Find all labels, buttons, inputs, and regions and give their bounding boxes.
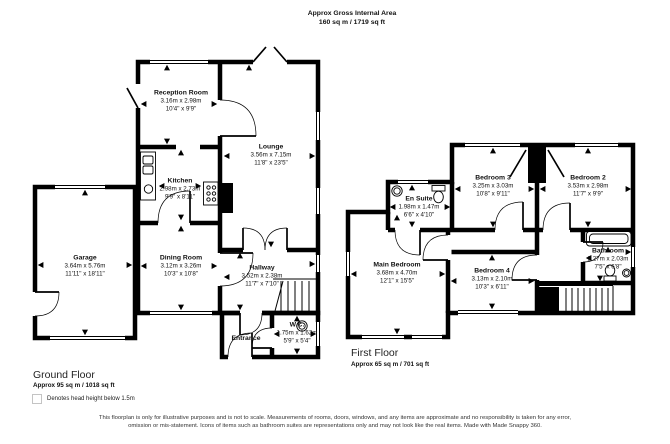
- gross-area-value: 160 sq m / 1719 sq ft: [319, 19, 385, 26]
- room-name: Dining Room: [160, 254, 202, 262]
- room-name: Bedroom 2: [568, 174, 609, 182]
- room-name: Main Bedroom: [373, 261, 420, 269]
- room-name: En Suite: [399, 195, 440, 203]
- window: [575, 142, 618, 149]
- window: [315, 255, 322, 272]
- legend-label: Denotes head height below 1.5m: [47, 396, 135, 402]
- room-dim-imperial: 12'1" x 15'5": [373, 277, 420, 284]
- room-name: Reception Room: [154, 89, 208, 97]
- room-dim-imperial: 10'3" x 6'11": [472, 283, 513, 290]
- room-dim-imperial: 10'8" x 9'11": [473, 190, 514, 197]
- room-label-bedroom4: Bedroom 4 3.13m x 2.10m 10'3" x 6'11": [472, 267, 513, 290]
- window: [630, 247, 637, 267]
- room-label-bathroom: Bathroom 2.27m x 2.03m 7'5" x 6'8": [588, 247, 629, 270]
- room-label-en-suite: En Suite 1.98m x 1.47m 6'6" x 4'10": [399, 195, 440, 218]
- first-floor-plan: [345, 142, 637, 341]
- room-dim-imperial: 11'11" x 18'11": [65, 270, 106, 277]
- chimney-breast: [220, 183, 233, 213]
- room-dim-metric: 3.25m x 3.03m: [473, 183, 514, 190]
- window: [362, 334, 404, 341]
- room-name: Garage: [65, 254, 106, 262]
- chimney-breast: [528, 145, 546, 183]
- room-label-main-bedroom: Main Bedroom 3.68m x 4.70m 12'1" x 15'5": [373, 261, 420, 284]
- window: [150, 59, 208, 66]
- ground-floor-title: Ground Floor: [33, 369, 95, 381]
- room-label-kitchen: Kitchen 2.98m x 2.73m 9'9" x 8'11": [160, 177, 201, 200]
- room-name: Entrance: [231, 335, 260, 343]
- first-floor-title: First Floor: [351, 347, 398, 359]
- page-header: Approx Gross Internal Area 160 sq m / 17…: [308, 10, 397, 28]
- head-height-swatch: [32, 394, 42, 404]
- window: [345, 252, 352, 276]
- floorplan-drawing: [0, 0, 670, 444]
- window: [50, 335, 125, 342]
- room-dim-metric: 1.98m x 1.47m: [399, 204, 440, 211]
- bathtub-icon: [587, 232, 632, 247]
- floorplan-page: Approx Gross Internal Area 160 sq m / 17…: [0, 0, 670, 444]
- room-dim-metric: 3.12m x 3.26m: [160, 263, 202, 270]
- room-dim-metric: 3.68m x 4.70m: [373, 270, 420, 277]
- legend: Denotes head height below 1.5m: [32, 394, 135, 404]
- room-label-reception: Reception Room 3.16m x 2.98m 10'4" x 9'9…: [154, 89, 208, 112]
- room-label-bedroom3: Bedroom 3 3.25m x 3.03m 10'8" x 9'11": [473, 174, 514, 197]
- room-dim-metric: 3.52m x 2.38m: [242, 273, 283, 280]
- room-dim-metric: 3.56m x 7.15m: [251, 152, 292, 159]
- room-dim-imperial: 11'7" x 7'10": [242, 280, 283, 287]
- window: [458, 309, 518, 316]
- room-name: Bedroom 3: [473, 174, 514, 182]
- sink-icon: [143, 156, 153, 164]
- room-name: W.C.: [277, 321, 318, 329]
- disclaimer-text: This floorplan is only for illustrative …: [95, 415, 575, 430]
- room-name: Kitchen: [160, 177, 201, 185]
- room-label-bedroom2: Bedroom 2 3.53m x 2.98m 11'7" x 9'9": [568, 174, 609, 197]
- window: [315, 188, 322, 214]
- room-dim-metric: 3.64m x 5.76m: [65, 263, 106, 270]
- room-dim-metric: 2.27m x 2.03m: [588, 256, 629, 263]
- room-label-entrance: Entrance: [231, 335, 260, 343]
- room-dim-imperial: 11'8" x 23'5": [251, 159, 292, 166]
- first-staircase: [537, 281, 613, 313]
- room-label-hallway: Hallway 3.52m x 2.38m 11'7" x 7'10": [242, 264, 283, 287]
- room-label-lounge: Lounge 3.56m x 7.15m 11'8" x 23'5": [251, 143, 292, 166]
- room-dim-imperial: 11'7" x 9'9": [568, 190, 609, 197]
- room-label-garage: Garage 3.64m x 5.76m 11'11" x 18'11": [65, 254, 106, 277]
- room-name: Hallway: [242, 264, 283, 272]
- room-dim-imperial: 7'5" x 6'8": [588, 263, 629, 270]
- room-dim-metric: 1.75m x 1.62m: [277, 330, 318, 337]
- room-dim-imperial: 9'9" x 8'11": [160, 193, 201, 200]
- window: [398, 179, 428, 186]
- sink-icon: [143, 166, 153, 174]
- window: [55, 184, 105, 191]
- ground-floor-area: Approx 95 sq m / 1018 sq ft: [33, 382, 115, 389]
- first-floor-area: Approx 65 sq m / 701 sq ft: [351, 361, 429, 368]
- window: [465, 142, 520, 149]
- room-name: Lounge: [251, 143, 292, 151]
- room-dim-imperial: 10'4" x 9'9": [154, 105, 208, 112]
- room-name: Bathroom: [588, 247, 629, 255]
- room-dim-imperial: 10'3" x 10'8": [160, 270, 202, 277]
- room-dim-metric: 2.98m x 2.73m: [160, 186, 201, 193]
- room-dim-metric: 3.53m x 2.98m: [568, 183, 609, 190]
- window: [150, 310, 212, 317]
- room-label-wc: W.C. 1.75m x 1.62m 5'9" x 5'4": [277, 321, 318, 344]
- gross-area-title: Approx Gross Internal Area: [308, 10, 397, 17]
- room-label-dining: Dining Room 3.12m x 3.26m 10'3" x 10'8": [160, 254, 202, 277]
- room-dim-imperial: 5'9" x 5'4": [277, 337, 318, 344]
- room-dim-metric: 3.16m x 2.98m: [154, 98, 208, 105]
- room-dim-metric: 3.13m x 2.10m: [472, 276, 513, 283]
- room-dim-imperial: 6'6" x 4'10": [399, 211, 440, 218]
- window: [315, 112, 322, 140]
- window: [412, 334, 442, 341]
- appliance-icon: [144, 185, 152, 193]
- room-name: Bedroom 4: [472, 267, 513, 275]
